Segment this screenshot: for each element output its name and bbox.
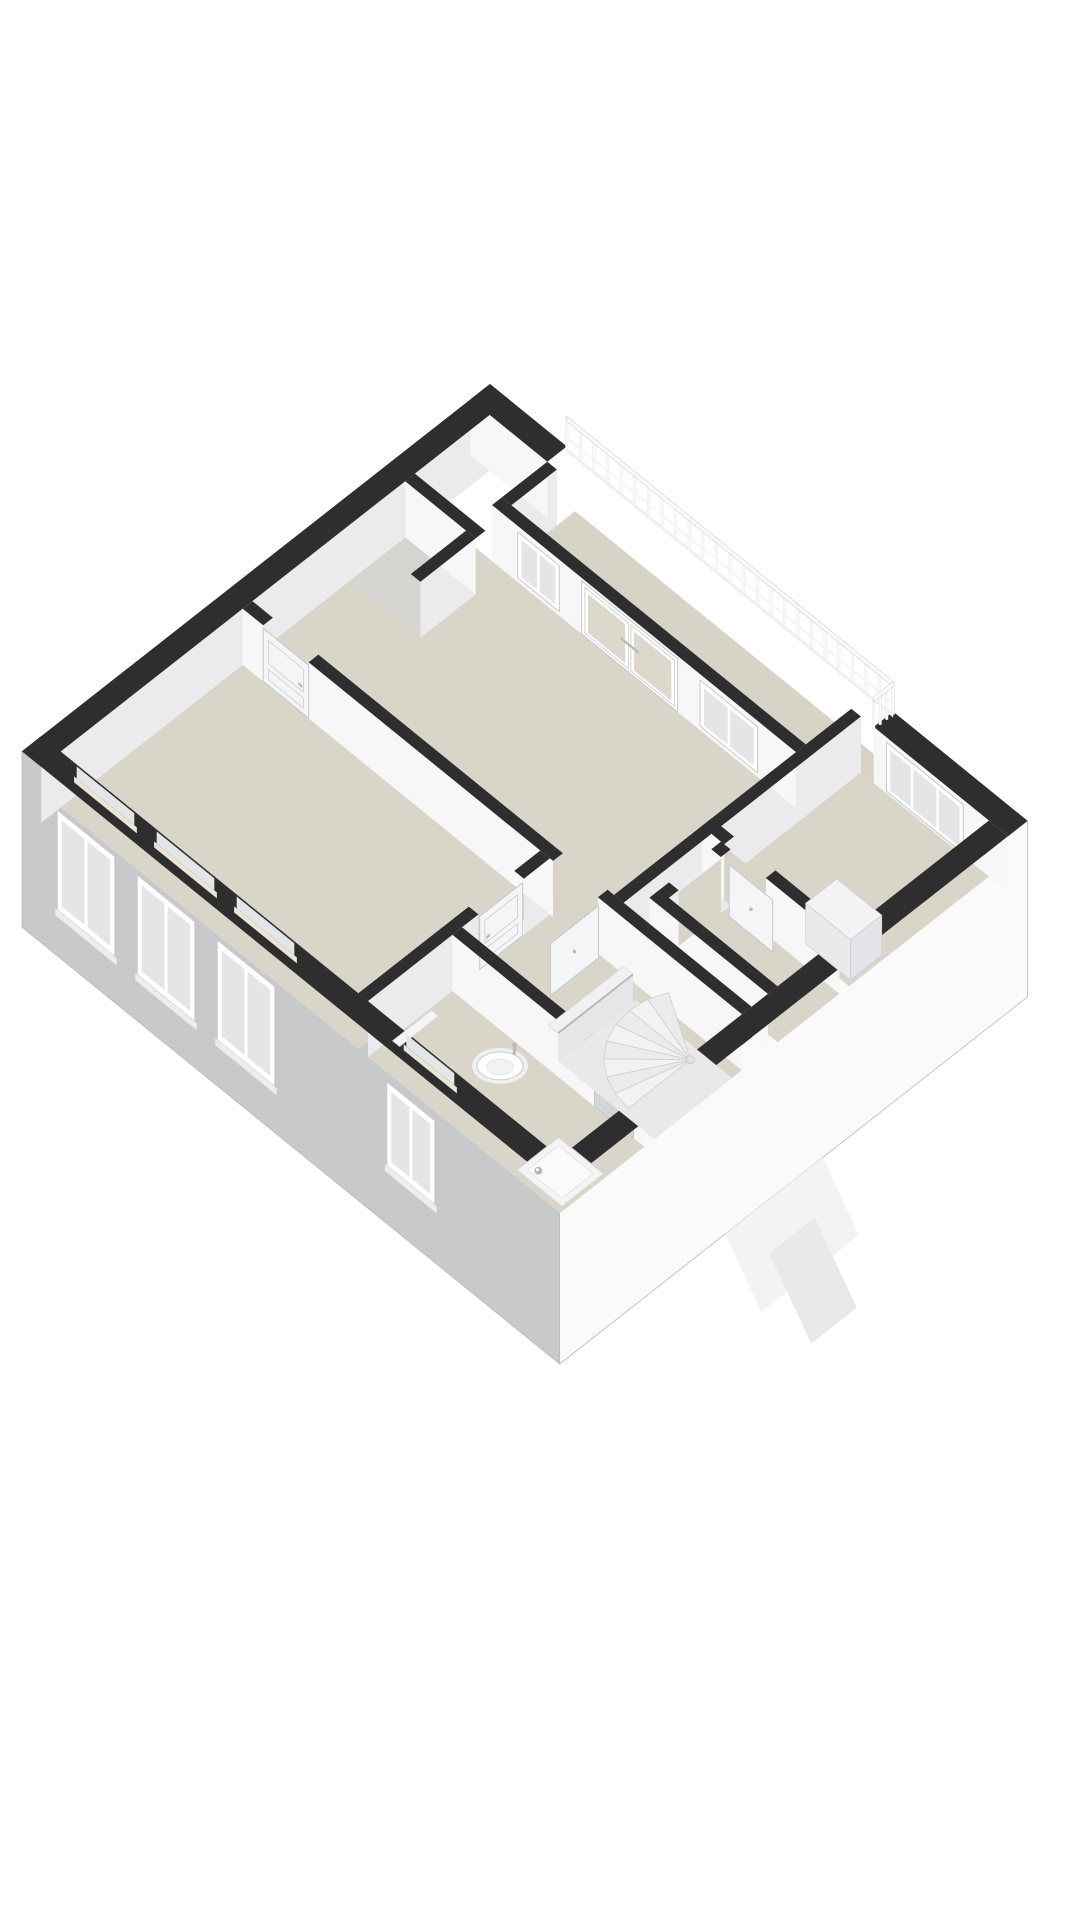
window-top-left-mullion	[537, 553, 540, 592]
facade-window-bathroom-mullion	[409, 1107, 412, 1180]
shower-drain	[534, 1167, 542, 1175]
door-handle	[749, 907, 753, 911]
floorplan-3d-render	[0, 0, 1080, 1920]
facade-window-3-mullion	[244, 969, 247, 1058]
winder-staircase-newel	[686, 1056, 694, 1064]
window-right-bedroom-mullion	[936, 788, 939, 830]
window-right-bedroom-mullion	[911, 767, 914, 809]
balcony-railing-return-rail	[874, 682, 894, 702]
floorplan-canvas	[0, 0, 1080, 1920]
shower-drain-highlight	[536, 1168, 539, 1171]
door-handle	[573, 950, 577, 954]
bathroom-sink-bowl	[487, 1059, 514, 1074]
facade-window-1-mullion	[84, 839, 87, 928]
sink-faucet-head	[512, 1042, 516, 1046]
facade-window-2-mullion	[164, 904, 167, 993]
window-top-right-mullion	[728, 707, 731, 746]
